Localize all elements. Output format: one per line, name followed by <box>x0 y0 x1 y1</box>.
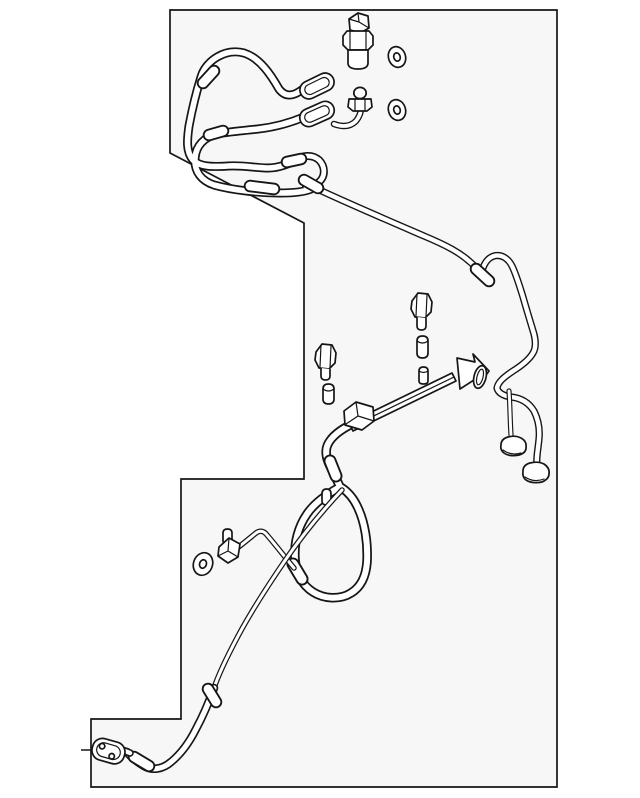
crimp-collar-body <box>209 131 223 135</box>
dowel-pin-left <box>323 384 334 404</box>
dowel-pin-right <box>417 336 428 358</box>
flange-hole <box>99 743 106 750</box>
hex-bolt-left-tip <box>321 368 330 380</box>
crimp-collar-body <box>287 159 301 162</box>
switch-connector-cube <box>349 13 369 33</box>
hex-bolt-right-head <box>411 293 432 318</box>
parts-diagram-page <box>0 0 640 798</box>
hex-bolt-left-head <box>315 344 336 369</box>
crimp-collar-body <box>250 186 274 189</box>
rail-pin <box>419 367 428 384</box>
flange-hole <box>108 753 115 760</box>
hose-sleeve-body <box>330 461 336 476</box>
valve-cap-dome <box>354 87 366 98</box>
parts-diagram-canvas <box>0 0 640 798</box>
switch-body <box>348 50 368 69</box>
switch-hex-flange <box>343 31 373 50</box>
hex-bolt-right-tip <box>417 317 426 330</box>
valve-nut <box>348 99 372 111</box>
drop-tube-body <box>509 391 511 435</box>
connector-foot-b <box>523 462 549 482</box>
connector-foot-a <box>501 436 526 455</box>
